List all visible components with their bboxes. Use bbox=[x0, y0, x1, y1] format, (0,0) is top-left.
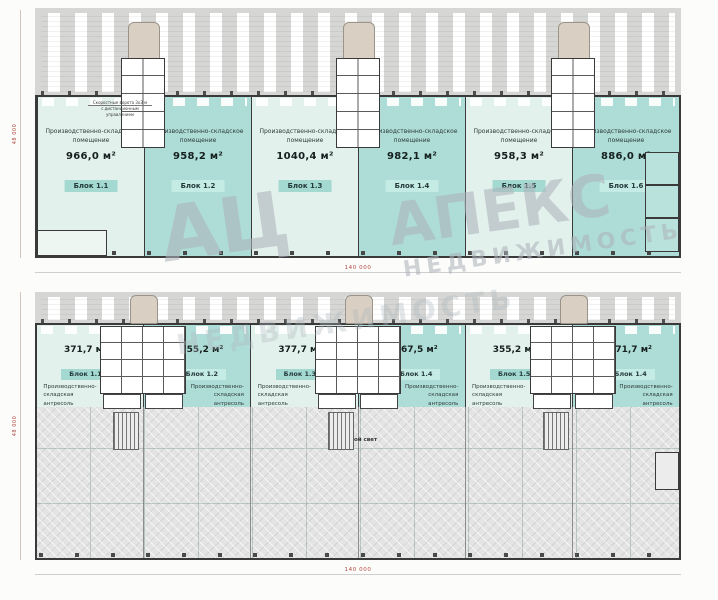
mezzanine-label: Производственно-складскаяантресоль bbox=[472, 383, 536, 408]
area-label: 966,0 м² bbox=[42, 151, 140, 162]
stair-flight bbox=[543, 412, 569, 450]
dock-van bbox=[128, 22, 160, 62]
gate-note: Скоростные ворота 3х3 м с дистанционным … bbox=[88, 100, 152, 117]
stair-core bbox=[551, 58, 595, 148]
area-label: 1040,4 м² bbox=[256, 151, 354, 162]
core-room bbox=[575, 394, 613, 409]
mezzanine-label: Производственно-складскаяантресоль bbox=[180, 383, 244, 408]
stair-flight bbox=[113, 412, 139, 450]
mezzanine-label: Производственно-складскаяантресоль bbox=[43, 383, 107, 408]
side-room bbox=[645, 185, 679, 218]
area-label: 958,3 м² bbox=[470, 151, 568, 162]
mezzanine-label: Производственно-складскаяантресоль bbox=[395, 383, 459, 408]
area-label: 958,2 м² bbox=[149, 151, 247, 162]
floor2-left-dimension: 48 000 bbox=[20, 292, 21, 560]
dock-van bbox=[558, 22, 590, 62]
side-room bbox=[655, 452, 679, 490]
block-badge: Блок 1.2 bbox=[172, 180, 225, 192]
stair-core bbox=[100, 326, 186, 394]
block-badge: Блок 1.1 bbox=[65, 180, 118, 192]
dock-van bbox=[560, 295, 588, 324]
core-room bbox=[103, 394, 141, 409]
mezzanine-label: Производственно-складскаяантресоль bbox=[258, 383, 322, 408]
dock-van bbox=[345, 295, 373, 324]
core-room bbox=[360, 394, 398, 409]
stair-flight bbox=[328, 412, 354, 450]
stair-core bbox=[336, 58, 380, 148]
core-room bbox=[145, 394, 183, 409]
mezzanine-label: Производственно-складскаяантресоль bbox=[609, 383, 673, 408]
floor1-bottom-dimension: 140 000 bbox=[35, 272, 681, 273]
side-room bbox=[645, 218, 679, 252]
stair-core bbox=[530, 326, 616, 394]
core-room bbox=[533, 394, 571, 409]
warehouse-floor-plan: Производственно-складское помещение 966,… bbox=[0, 0, 718, 600]
area-label: 982,1 м² bbox=[363, 151, 461, 162]
block-badge: Блок 1.5 bbox=[493, 180, 546, 192]
utility-room bbox=[37, 230, 107, 256]
dock-van bbox=[130, 295, 158, 324]
floor1-left-dimension: 48 000 bbox=[20, 10, 21, 258]
stair-core bbox=[315, 326, 401, 394]
side-room bbox=[645, 152, 679, 185]
floor2-bottom-dimension: 140 000 bbox=[35, 574, 681, 575]
dock-van bbox=[343, 22, 375, 62]
block-badge: Блок 1.4 bbox=[386, 180, 439, 192]
block-badge: Блок 1.3 bbox=[279, 180, 332, 192]
core-room bbox=[318, 394, 356, 409]
